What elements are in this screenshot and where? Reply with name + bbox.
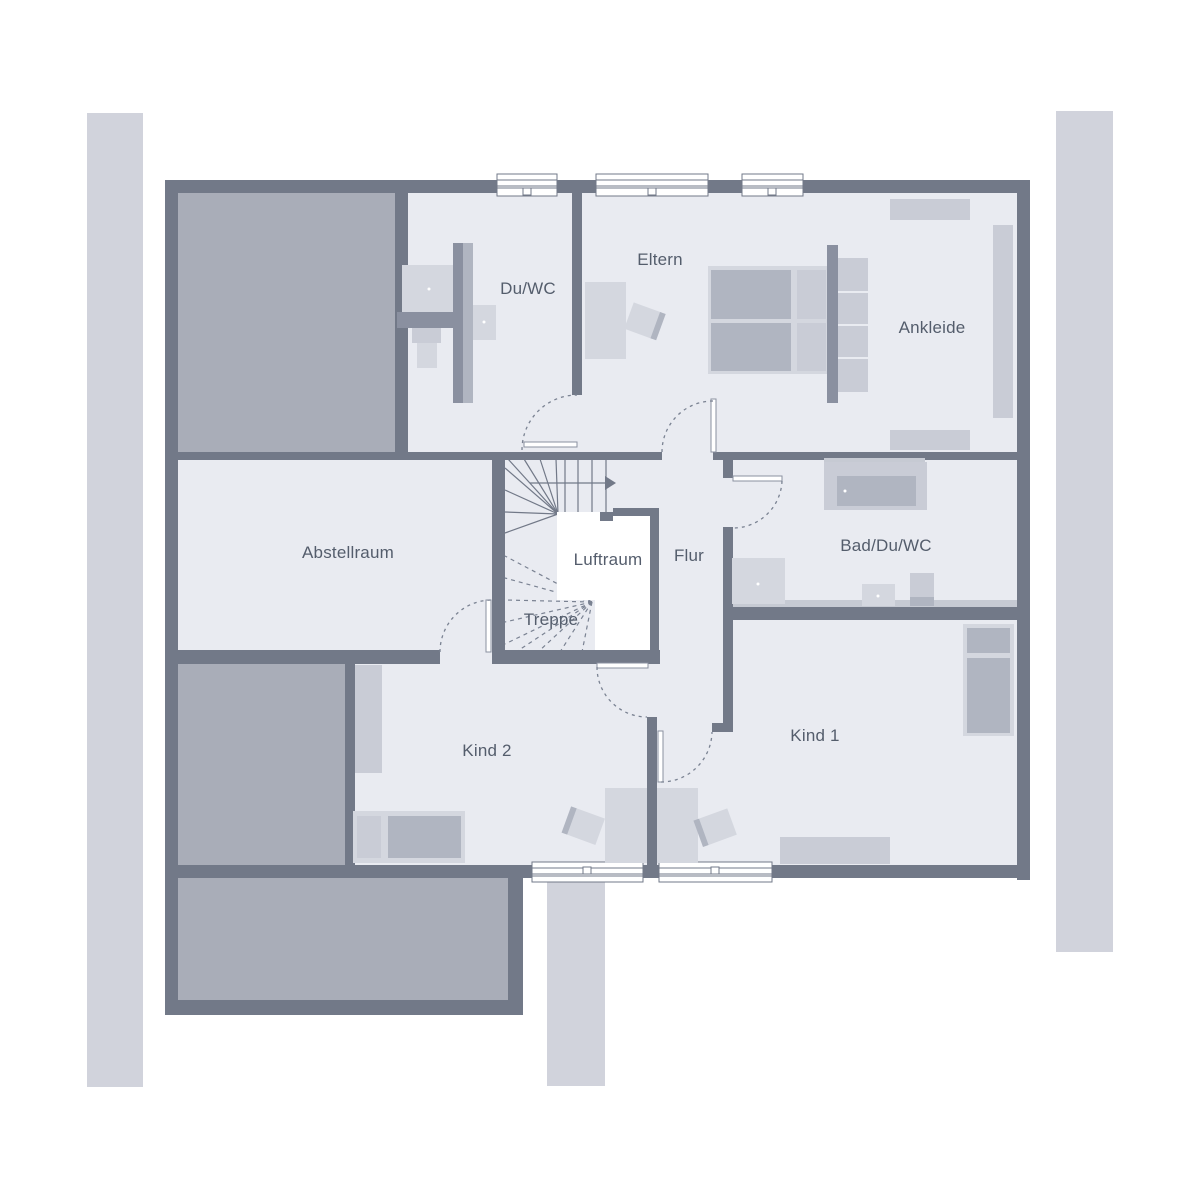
room-label-abstellraum: Abstellraum [302, 543, 394, 563]
bad-washbasin [910, 573, 934, 606]
window-bottom-1 [532, 862, 643, 882]
eltern-desk [585, 282, 626, 359]
ankleide-cabinet-top [890, 199, 970, 220]
ankleide-shelf-column [838, 258, 868, 392]
duwc-shower [402, 265, 455, 312]
eltern-double-bed [708, 266, 829, 374]
stair-wall-bottom [492, 650, 660, 664]
bad-toilet [862, 584, 895, 606]
kind2-desk [605, 788, 647, 863]
roof-area-mid-left [178, 664, 345, 866]
right-roof-strip [1056, 111, 1113, 952]
room-label-treppe: Treppe [524, 610, 578, 630]
floor-plan-drawing [0, 0, 1200, 1200]
room-label-flur: Flur [674, 546, 704, 566]
bad-bathtub [824, 458, 927, 510]
room-label-ankleide: Ankleide [899, 318, 966, 338]
bed-headboard-partition [827, 245, 838, 403]
room-label-luftraum: Luftraum [574, 550, 643, 570]
luftraum-wall-right [650, 508, 659, 664]
room-label-bad-du-wc: Bad/Du/WC [840, 536, 932, 556]
room-label-kind-2: Kind 2 [462, 741, 511, 761]
roof-area-top-left [178, 193, 395, 452]
kind-divider-wall [647, 717, 657, 866]
protrusion-wall-bottom [165, 1000, 523, 1015]
kind1-sideboard [780, 837, 890, 864]
luftraum-wall-notch [600, 512, 613, 521]
left-roof-strip [87, 113, 143, 1087]
window-bottom-2 [659, 862, 772, 882]
bad-wall-left [723, 527, 733, 732]
luftraum-wall-cap [613, 508, 652, 516]
room-label-kind-1: Kind 1 [790, 726, 839, 746]
protrusion-wall-right [508, 865, 523, 1015]
duwc-partition-vertical [453, 243, 473, 403]
floor-plan: Du/WC Eltern Ankleide Abstellraum Luftra… [0, 0, 1200, 1200]
flur-wall-foot [712, 723, 733, 732]
duwc-washbasin [473, 305, 496, 340]
kind1-wardrobe [963, 624, 1014, 736]
duwc-partition-horizontal [397, 312, 455, 328]
mid-wall-west [178, 452, 662, 460]
window-top-2 [596, 174, 708, 196]
kind1-desk [657, 788, 698, 863]
roof-area-bottom-left [178, 878, 508, 1000]
ankleide-cabinet-bottom [890, 430, 970, 450]
bad-door-stub [723, 459, 733, 478]
kind2-wardrobe [355, 665, 382, 773]
room-label-du-wc: Du/WC [500, 279, 556, 299]
abstellraum-wall-bottom [178, 650, 440, 664]
window-top-1 [497, 174, 557, 196]
window-top-3 [742, 174, 803, 196]
bad-shower [732, 558, 785, 604]
kind2-bed [353, 811, 465, 863]
bad-wall-bottom [723, 606, 1017, 620]
outer-wall-right [1017, 180, 1030, 880]
room-label-eltern: Eltern [637, 250, 683, 270]
bottom-roof-strip [547, 882, 605, 1086]
outer-wall-left [165, 180, 178, 1015]
stair-wall-left [492, 459, 505, 664]
ankleide-wardrobe-right [993, 225, 1013, 418]
duwc-eltern-wall [572, 193, 582, 395]
